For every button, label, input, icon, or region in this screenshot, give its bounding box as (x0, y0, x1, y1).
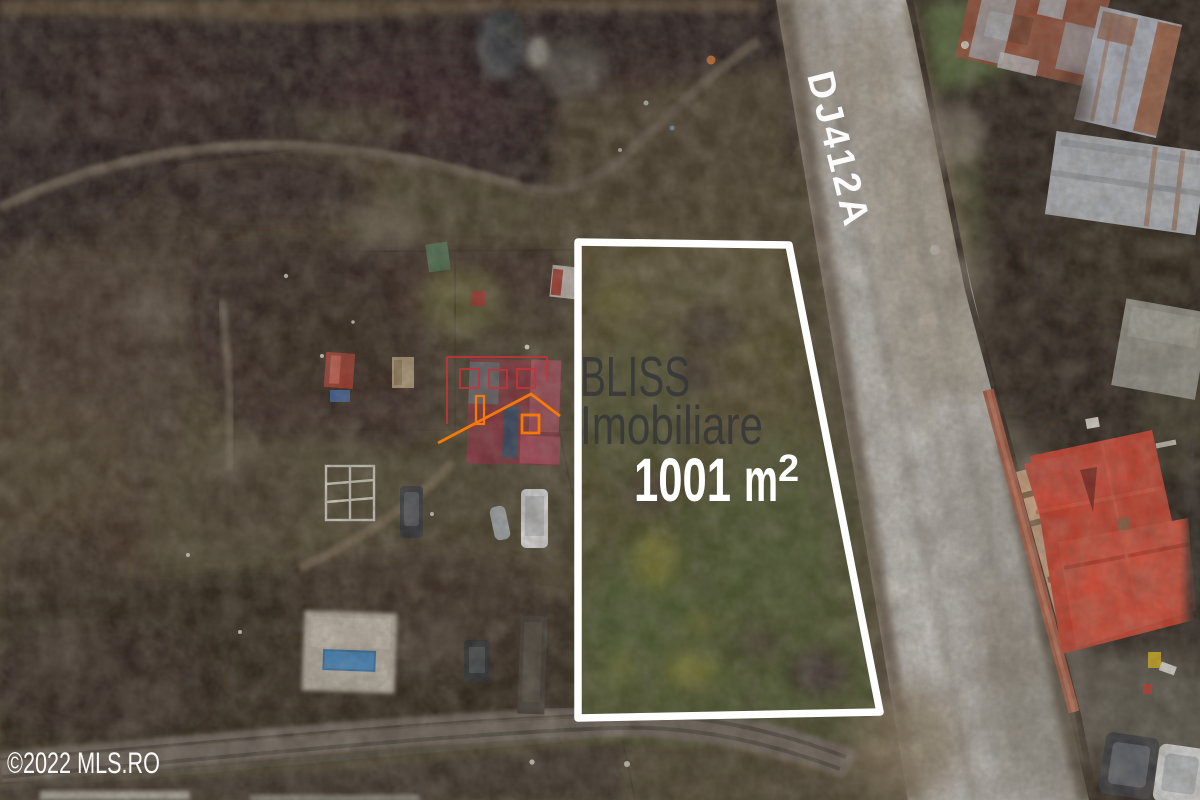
svg-text:1001: 1001 (634, 446, 731, 514)
svg-text:2: 2 (778, 448, 799, 490)
svg-text:m: m (744, 446, 778, 514)
svg-text:©2022 MLS.RO: ©2022 MLS.RO (7, 747, 160, 780)
